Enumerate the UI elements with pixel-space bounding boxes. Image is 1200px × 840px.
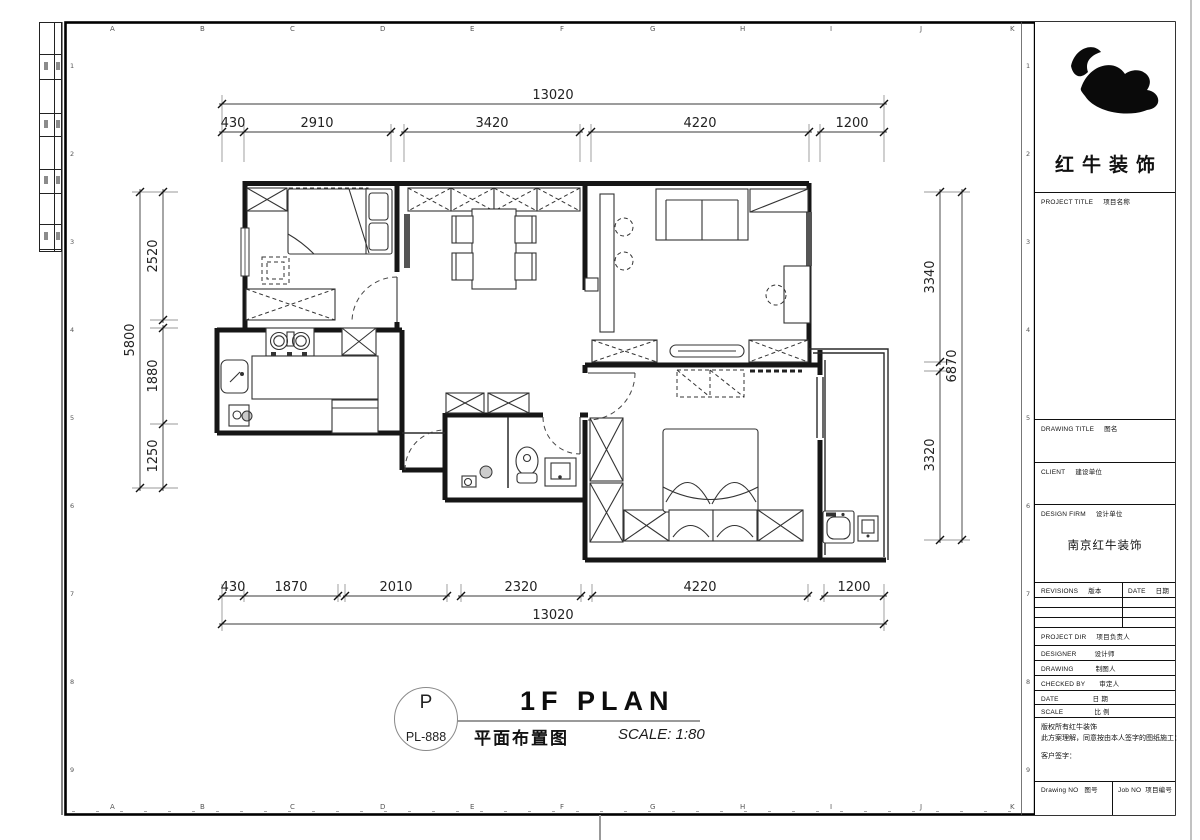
ruler-letter: I bbox=[830, 25, 832, 33]
revision-row bbox=[1035, 597, 1175, 598]
ruler-letter: A bbox=[110, 803, 115, 811]
label-cn: 版本 bbox=[1088, 588, 1101, 595]
revision-row bbox=[1035, 617, 1175, 618]
checked-by-row: CHECKED BY审定人 bbox=[1035, 676, 1175, 691]
toilet-tank bbox=[517, 473, 537, 483]
kitchen-sink bbox=[221, 360, 248, 393]
label-en: DESIGNER bbox=[1041, 651, 1077, 658]
ruler-numbers-right: 1 2 3 4 5 6 7 8 9 bbox=[1026, 62, 1030, 774]
dimensions-left: 2520 1880 1250 5800 bbox=[123, 188, 178, 492]
label-cn: 设计师 bbox=[1095, 651, 1115, 658]
dim-value: 13020 bbox=[532, 608, 573, 623]
dimensions-bottom: 430 1870 2010 2320 4220 1200 13020 bbox=[218, 580, 888, 631]
label-cn: 日 期 bbox=[1093, 696, 1108, 703]
faucet bbox=[826, 513, 836, 517]
ruler-letter: A bbox=[110, 25, 115, 33]
ruler-letter: G bbox=[650, 25, 655, 33]
label-en: CLIENT bbox=[1041, 469, 1065, 476]
ruler-letter: H bbox=[740, 803, 745, 811]
ruler-number: 6 bbox=[1026, 502, 1030, 510]
note-line: 版权所有红牛装饰 bbox=[1041, 722, 1097, 732]
label-en: CHECKED BY bbox=[1041, 681, 1085, 688]
ruler-letter: E bbox=[470, 25, 474, 33]
bar-furniture bbox=[585, 194, 633, 332]
revisions-table: REVISIONS版本 DATE日期 bbox=[1035, 583, 1175, 628]
kitchen-furniture bbox=[221, 328, 445, 470]
bull-logo bbox=[1035, 22, 1175, 142]
ruler-number: 7 bbox=[70, 590, 74, 598]
shower-drain bbox=[480, 466, 492, 478]
living-furniture bbox=[592, 189, 810, 362]
label-en: DATE bbox=[1041, 696, 1059, 703]
bar-stool bbox=[615, 218, 633, 236]
ruler-letter: E bbox=[470, 803, 474, 811]
dim-value: 430 bbox=[221, 116, 246, 131]
label-cn: 制图人 bbox=[1096, 666, 1116, 673]
ruler-letter: B bbox=[200, 25, 205, 33]
ruler-number: 5 bbox=[70, 414, 74, 422]
label-en: PROJECT TITLE bbox=[1041, 199, 1093, 206]
dimensions-top: 13020 430 2910 3420 4220 1200 bbox=[218, 88, 888, 162]
label-cn: 建设单位 bbox=[1075, 469, 1102, 476]
vanity bbox=[545, 458, 576, 486]
dimensions-right: 3340 3320 6870 bbox=[923, 188, 970, 544]
faucet bbox=[240, 372, 244, 376]
ruler-number: 1 bbox=[70, 62, 74, 70]
revisions-col-divider bbox=[1122, 583, 1123, 627]
label-cn: 设计单位 bbox=[1096, 511, 1123, 518]
nightstand-inner bbox=[267, 262, 284, 279]
door-arc-bedroom2 bbox=[588, 373, 635, 420]
label-cn: 图号 bbox=[1084, 787, 1097, 794]
balcony-furniture bbox=[823, 511, 878, 543]
plan-title-cn: 平面布置图 bbox=[474, 724, 569, 749]
ruler-letters-top: A B C D E F G H I J K bbox=[110, 25, 1015, 33]
door-arc-bathroom bbox=[543, 417, 580, 454]
label-en: REVISIONS bbox=[1041, 588, 1078, 595]
ruler-letter: G bbox=[650, 803, 655, 811]
strip-divider bbox=[54, 23, 55, 251]
dining-furniture bbox=[408, 188, 580, 289]
ruler-letter: H bbox=[740, 25, 745, 33]
floor-drain bbox=[242, 411, 252, 421]
scale-row: SCALE比 例 bbox=[1035, 705, 1175, 718]
label-cn: 比 例 bbox=[1094, 709, 1109, 716]
dining-table bbox=[472, 209, 516, 289]
logo-box: 红牛装饰 bbox=[1035, 22, 1175, 193]
ruler-letter: K bbox=[1010, 803, 1015, 811]
entry-door-arc bbox=[405, 430, 445, 470]
chair bbox=[515, 253, 536, 280]
plan-scale: SCALE: 1:80 bbox=[618, 726, 705, 743]
nightstand bbox=[262, 257, 289, 284]
dim-value: 2910 bbox=[300, 116, 333, 131]
drawing-sheet: A B C D E F G H I J K A B C D E F G H I … bbox=[0, 0, 1200, 840]
chair bbox=[515, 216, 536, 243]
drawing-title-row: DRAWING TITLE图名 bbox=[1035, 420, 1175, 463]
bar-base bbox=[585, 278, 598, 291]
drawing-row: DRAWING制图人 bbox=[1035, 661, 1175, 676]
design-firm-row: DESIGN FIRM设计单位 南京红牛装饰 bbox=[1035, 505, 1175, 583]
door-arc-bedroom1 bbox=[352, 277, 397, 322]
bar-counter bbox=[600, 194, 614, 332]
plan-reference-bubble: P PL-888 bbox=[394, 687, 458, 751]
client-row: CLIENT建设单位 bbox=[1035, 463, 1175, 505]
radiator-dining bbox=[404, 214, 410, 268]
ruler-number: 4 bbox=[70, 326, 74, 334]
desk-chair bbox=[766, 285, 786, 305]
dim-value: 3420 bbox=[475, 116, 508, 131]
desk bbox=[784, 266, 810, 323]
label-en: DRAWING bbox=[1041, 666, 1074, 673]
note-line: 客户签字： bbox=[1041, 751, 1076, 761]
ruler-number: 1 bbox=[1026, 62, 1030, 70]
dim-value: 1200 bbox=[837, 580, 870, 595]
ruler-number: 5 bbox=[1026, 414, 1030, 422]
designer-row: DESIGNER设计师 bbox=[1035, 646, 1175, 661]
kitchen-counter bbox=[252, 356, 378, 399]
ruler-letter: I bbox=[830, 803, 832, 811]
chair bbox=[452, 216, 473, 243]
number-row: Drawing NO图号 Job NO项目编号 bbox=[1035, 782, 1175, 815]
bedroom2-furniture bbox=[588, 370, 803, 542]
label-en: DATE bbox=[1128, 588, 1146, 595]
dim-value: 3320 bbox=[923, 438, 938, 471]
ruler-number: 9 bbox=[70, 766, 74, 774]
ruler-number: 3 bbox=[70, 238, 74, 246]
label-cn: 项目名称 bbox=[1103, 199, 1130, 206]
revision-row bbox=[1035, 607, 1175, 608]
ruler-letter: C bbox=[290, 25, 295, 33]
ruler-number: 8 bbox=[70, 678, 74, 686]
ruler-number: 2 bbox=[1026, 150, 1030, 158]
label-cn: 审定人 bbox=[1099, 681, 1119, 688]
ruler-numbers-left: 1 2 3 4 5 6 7 8 9 bbox=[70, 62, 74, 774]
dim-value: 2320 bbox=[504, 580, 537, 595]
dim-value: 1250 bbox=[146, 439, 161, 472]
note-line: 此方案理解，同意按由本人签字的图纸施工： bbox=[1041, 733, 1181, 743]
ruler-number: 3 bbox=[1026, 238, 1030, 246]
project-dir-row: PROJECT DIR项目负责人 bbox=[1035, 628, 1175, 646]
label-en: PROJECT DIR bbox=[1041, 634, 1086, 641]
ruler-number: 8 bbox=[1026, 678, 1030, 686]
label-en: DESIGN FIRM bbox=[1041, 511, 1086, 518]
design-firm-value: 南京红牛装饰 bbox=[1035, 537, 1175, 553]
label-cn: 项目负责人 bbox=[1096, 634, 1130, 641]
window-living bbox=[806, 212, 812, 266]
ruler-letter: D bbox=[380, 803, 385, 811]
notes-box: 版权所有红牛装饰 此方案理解，同意按由本人签字的图纸施工： 客户签字： bbox=[1035, 718, 1175, 782]
bar-stool bbox=[615, 252, 633, 270]
dim-value: 3340 bbox=[923, 260, 938, 293]
dim-value: 1200 bbox=[835, 116, 868, 131]
fridge bbox=[332, 400, 378, 433]
label-en: Drawing NO bbox=[1041, 787, 1078, 794]
label-cn: 项目编号 bbox=[1145, 787, 1172, 794]
dim-value: 4220 bbox=[683, 116, 716, 131]
ruler-letters-bottom: A B C D E F G H I J K bbox=[110, 803, 1015, 811]
dim-value: 430 bbox=[221, 580, 246, 595]
ruler-number: 6 bbox=[70, 502, 74, 510]
ruler-number: 9 bbox=[1026, 766, 1030, 774]
label-cn: 日期 bbox=[1156, 588, 1169, 595]
project-title-row: PROJECT TITLE项目名称 bbox=[1035, 193, 1175, 420]
dim-value: 6870 bbox=[945, 349, 960, 382]
bathroom-furniture bbox=[446, 393, 580, 488]
chair bbox=[452, 253, 473, 280]
ruler-letter: F bbox=[560, 803, 564, 811]
dim-value: 2520 bbox=[146, 239, 161, 272]
ruler-letter: D bbox=[380, 25, 385, 33]
ruler-letter: C bbox=[290, 803, 295, 811]
bubble-code: PL-888 bbox=[395, 730, 457, 744]
bubble-letter: P bbox=[395, 692, 457, 714]
label-en: SCALE bbox=[1041, 709, 1063, 716]
ruler-letter: J bbox=[919, 803, 922, 811]
dim-value: 4220 bbox=[683, 580, 716, 595]
dim-value: 2010 bbox=[379, 580, 412, 595]
company-name: 红牛装饰 bbox=[1035, 150, 1175, 177]
number-col-divider bbox=[1112, 782, 1113, 815]
ruler-letter: K bbox=[1010, 25, 1015, 33]
label-en: Job NO bbox=[1118, 787, 1141, 794]
label-cn: 图名 bbox=[1104, 426, 1117, 433]
dim-value: 13020 bbox=[532, 88, 573, 103]
margin-strip bbox=[39, 22, 62, 252]
ruler-letter: F bbox=[560, 25, 564, 33]
ruler-number: 2 bbox=[70, 150, 74, 158]
date-row: DATE日 期 bbox=[1035, 691, 1175, 705]
plan-title-en: 1F PLAN bbox=[520, 686, 675, 717]
ruler-number: 7 bbox=[1026, 590, 1030, 598]
bedroom1-furniture bbox=[246, 188, 397, 322]
ruler-number: 4 bbox=[1026, 326, 1030, 334]
title-block: 红牛装饰 PROJECT TITLE项目名称 DRAWING TITLE图名 C… bbox=[1035, 22, 1175, 815]
label-en: DRAWING TITLE bbox=[1041, 426, 1094, 433]
dim-value: 1880 bbox=[146, 359, 161, 392]
dim-value: 5800 bbox=[123, 323, 138, 356]
ruler-letter: J bbox=[919, 25, 922, 33]
ruler-letter: B bbox=[200, 803, 205, 811]
dim-value: 1870 bbox=[274, 580, 307, 595]
